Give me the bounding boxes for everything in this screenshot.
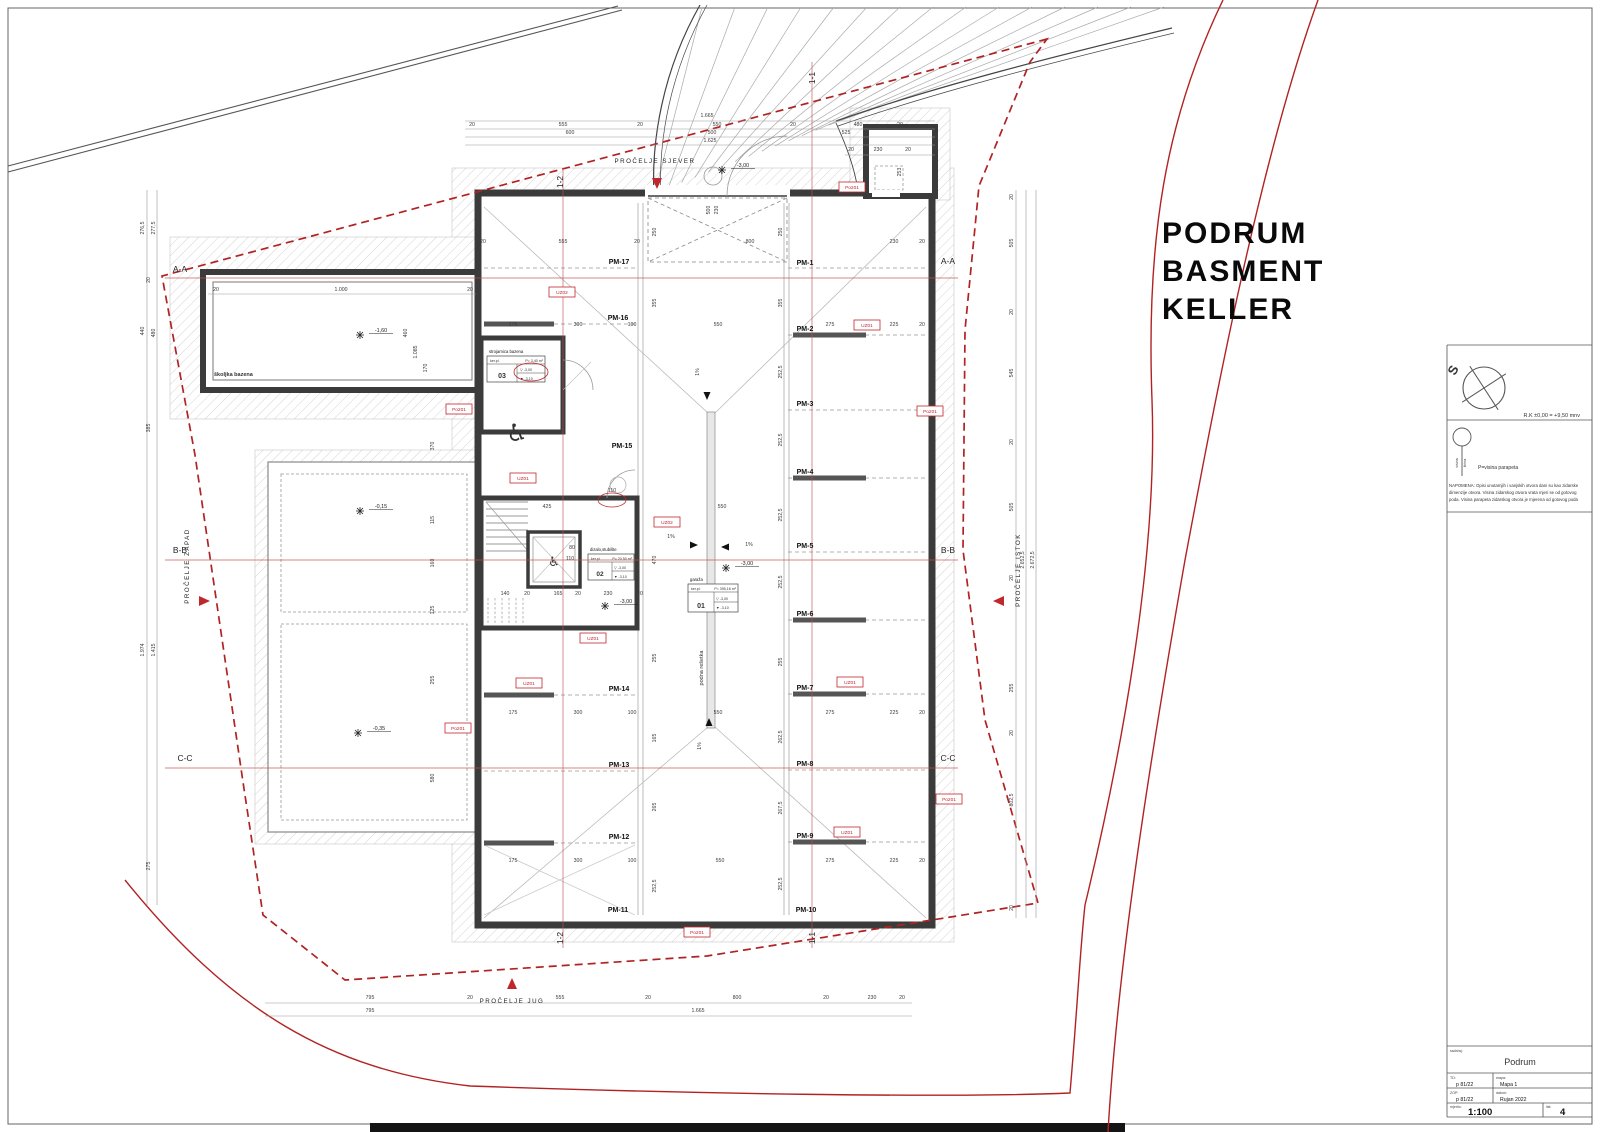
dim-label: 275: [146, 862, 152, 871]
slope-percent-label: 1%: [667, 534, 675, 540]
dim-label: 225: [890, 858, 899, 864]
zop-label: ZOP:: [1450, 1091, 1458, 1095]
scale-label: mjerilo:: [1450, 1105, 1462, 1109]
type-tag-label: UZ01: [844, 680, 856, 686]
floor-grate: [707, 412, 715, 728]
parking-spot-label: PM-9: [797, 833, 814, 840]
parking-spot-label: PM-16: [608, 315, 629, 322]
td-label: TD:: [1450, 1076, 1456, 1080]
parking-spot-label: PM-14: [609, 686, 630, 693]
dim-label: 252,5: [652, 879, 658, 892]
dim-label: 20: [146, 277, 152, 283]
dim-label: 20: [213, 287, 219, 293]
room-level-1: ▽ -3,00: [716, 597, 728, 601]
sheet-label: list:: [1546, 1105, 1551, 1109]
dim-label: 20: [919, 239, 925, 245]
dim-label: 160: [430, 559, 436, 568]
scan-edge-strip: [370, 1123, 1125, 1132]
info-column-frame: [1447, 345, 1592, 1117]
dim-label: 175: [509, 322, 518, 328]
drawing-sheet: školjka bazena podna rešetka: [0, 0, 1600, 1132]
dim-label: 2.672,5: [1030, 551, 1036, 568]
room-floor: ker.pl.: [490, 359, 500, 363]
opening-legend: visina širina P=visina parapeta NAPOMENA…: [1449, 428, 1579, 502]
terrace-rooms: [268, 462, 478, 832]
section-marker-label: 1-2: [555, 176, 565, 189]
spot-elevation-value: -1,60: [375, 328, 387, 334]
dim-label: 1.665: [701, 113, 714, 119]
dim-label: 20: [1009, 730, 1015, 736]
dim-label: 255: [430, 676, 436, 685]
spot-elevation-value: -3,00: [620, 599, 632, 605]
facade-arrow-icon: [199, 596, 210, 606]
room-level-1: ▽ -3,00: [520, 368, 532, 372]
dim-label: 600: [566, 130, 575, 136]
spot-elevation-value: -3,00: [741, 561, 753, 567]
dim-label: 230: [890, 239, 899, 245]
dim-label: 277,5: [151, 221, 157, 234]
room-name: strojarnica bazena: [489, 349, 524, 354]
dim-label: 170: [423, 364, 429, 373]
accessible-parking-icon: ♿: [506, 420, 528, 447]
room-floor: ker.pl.: [691, 587, 701, 591]
dim-label: 165: [652, 734, 658, 743]
dim-label: 252,5: [778, 365, 784, 378]
dim-label: 252,5: [778, 575, 784, 588]
sirina-label: širina: [1463, 459, 1467, 468]
dim-label: 230: [714, 206, 720, 215]
facade-label: PROČELJE ISTOK: [1015, 533, 1022, 607]
dim-label: 300: [574, 322, 583, 328]
type-tag-label: Po201: [923, 409, 937, 415]
section-marker-label: B-B: [941, 545, 956, 555]
pool-label: školjka bazena: [214, 372, 254, 378]
datum-note: R.K ±0,00 = +9,50 mnv: [1523, 413, 1580, 419]
content-value: Podrum: [1504, 1057, 1536, 1067]
dim-label: 225: [890, 710, 899, 716]
dim-label: 253: [897, 168, 903, 177]
dim-label: 140: [501, 591, 510, 597]
section-marker-label: B-B: [173, 545, 188, 555]
dim-label: 252,5: [778, 433, 784, 446]
dim-label: 20: [467, 287, 473, 293]
dim-label: 100: [628, 710, 637, 716]
dim-label: 1.000: [335, 287, 348, 293]
dim-label: 110: [608, 488, 616, 494]
dim-label: 175: [509, 858, 518, 864]
parapet-label: P=visina parapeta: [1478, 465, 1518, 471]
dim-label: 275: [826, 710, 835, 716]
dim-label: 267,5: [778, 801, 784, 814]
type-tag-label: UZ01: [523, 681, 535, 687]
north-compass: S R.K ±0,00 = +9,50 mnv: [1444, 352, 1580, 424]
dim-label: 802,5: [1009, 793, 1015, 806]
parking-spot-label: PM-17: [609, 259, 630, 266]
dim-label: 20: [790, 122, 796, 128]
dim-label: 20: [524, 591, 530, 597]
room-area: P= 20,50 m²: [612, 557, 632, 561]
dim-label: 505: [1009, 503, 1015, 512]
dim-label: 230: [874, 147, 883, 153]
dim-label: 20: [469, 122, 475, 128]
section-marker-label: 1-1: [807, 932, 817, 945]
facade-label: PROČELJE SJEVER: [615, 158, 696, 165]
dim-label: 230: [604, 591, 613, 597]
dim-label: 800: [733, 995, 742, 1001]
dim-label: 370: [430, 442, 436, 451]
garage-entry-opening: [645, 185, 790, 201]
room-area: P= 395,16 m²: [714, 587, 736, 591]
dim-label: 20: [645, 995, 651, 1001]
parking-spot-label: PM-6: [797, 611, 814, 618]
floor-grate-label: podna rešetka: [699, 650, 705, 686]
section-marker-label: C-C: [940, 753, 955, 763]
road-edge-lines: [8, 6, 622, 172]
dim-label: 525: [842, 130, 851, 136]
date-label: datum:: [1496, 1091, 1507, 1095]
mapa-value: Mapa 1: [1500, 1082, 1517, 1088]
dim-label: 580: [430, 774, 436, 783]
note-line-1: NAPOMENA: Opisi unutarnjih i vanjskih ot…: [1449, 483, 1579, 488]
td-value: p 81/22: [1456, 1082, 1473, 1088]
dim-label: 20: [467, 995, 473, 1001]
type-tag-label: UZ02: [661, 520, 673, 526]
dim-label: 500: [706, 206, 712, 215]
parking-spot-label: PM-5: [797, 543, 814, 550]
dim-label: 550: [716, 858, 725, 864]
dim-label: 115: [430, 516, 436, 524]
date-value: Rujan 2022: [1500, 1097, 1527, 1103]
room-level-2: ▼ -3,10: [716, 606, 729, 610]
type-tag-label: UZ01: [841, 830, 853, 836]
dim-label: 545: [1009, 369, 1015, 378]
dim-label: 20: [823, 995, 829, 1001]
elevator-wheelchair-icon: ♿: [548, 554, 560, 569]
facade-arrow-icon: [993, 596, 1004, 606]
room-name: garaža: [690, 577, 703, 582]
dim-label: 1.974: [140, 643, 146, 656]
room-number: 03: [498, 373, 506, 380]
dim-label: 20: [1009, 439, 1015, 445]
dim-label: 550: [714, 322, 723, 328]
dim-label: 20: [905, 147, 911, 153]
dim-label: 555: [559, 122, 568, 128]
parking-spot-label: PM-12: [609, 834, 630, 841]
dim-label: 110: [566, 556, 574, 562]
content-label: sadržaj:: [1450, 1049, 1463, 1053]
dim-label: 255: [778, 658, 784, 667]
floor-plan-drawing: školjka bazena podna rešetka: [0, 0, 1600, 1132]
dim-label: 175: [509, 710, 518, 716]
dim-label: 440: [140, 327, 146, 336]
dim-label: 262,5: [778, 730, 784, 743]
dim-label: 20: [848, 147, 854, 153]
dim-label: 165: [554, 591, 563, 597]
dim-label: 275: [826, 858, 835, 864]
dim-label: 425: [543, 504, 552, 510]
sheet-value: 4: [1560, 1107, 1566, 1118]
parking-spot-label: PM-10: [796, 907, 817, 914]
section-marker-label: C-C: [177, 753, 192, 763]
type-tag-label: Po201: [690, 930, 704, 936]
opening-symbol-icon: [1453, 428, 1471, 446]
dim-label: 100: [628, 322, 637, 328]
dim-label: 470: [652, 556, 658, 565]
parking-spot-label: PM-3: [797, 401, 814, 408]
section-marker-label: 1-2: [555, 932, 565, 945]
dim-label: 100: [628, 858, 637, 864]
dim-label: 252,5: [778, 508, 784, 521]
type-tag-label: Po201: [451, 726, 465, 732]
visina-label: visina: [1455, 458, 1459, 467]
facade-label: PROČELJE ZAPAD: [184, 528, 191, 604]
drawing-caption: PODRUM BASMENT KELLER: [1162, 217, 1324, 326]
dim-label: 555: [556, 995, 565, 1001]
dim-label: 555: [559, 239, 568, 245]
type-tag-label: UZ01: [861, 323, 873, 329]
room-number: 02: [596, 571, 604, 578]
parking-spot-label: PM-13: [609, 762, 630, 769]
dim-label: 1.665: [692, 1008, 705, 1014]
dim-label: 125: [430, 606, 436, 615]
facade-arrow-icon: [507, 978, 517, 989]
dim-label: 252,5: [778, 877, 784, 890]
parking-spot-label: PM-2: [797, 326, 814, 333]
room-number: 01: [697, 603, 705, 610]
dim-label: 795: [366, 1008, 375, 1014]
dim-label: 460: [403, 329, 409, 338]
dim-label: 300: [574, 710, 583, 716]
dim-label: 20: [919, 710, 925, 716]
section-marker-label: 1-1: [807, 72, 817, 85]
type-tag-label: UZ01: [517, 476, 529, 482]
parking-spot-label: PM-4: [797, 469, 814, 476]
dim-label: 20: [575, 591, 581, 597]
dim-label: 20: [897, 122, 903, 128]
dim-label: 1.415: [151, 643, 157, 656]
dim-label: 276,5: [140, 221, 146, 234]
caption-line-basment: BASMENT: [1162, 255, 1324, 288]
note-line-3: poda. Visina parapeta zidarskog otvora j…: [1449, 497, 1579, 502]
dim-label: 500: [708, 130, 717, 136]
dim-label: 20: [1009, 309, 1015, 315]
dim-label: 275: [826, 322, 835, 328]
dim-label: 795: [366, 995, 375, 1001]
parking-spot-label: PM-7: [797, 685, 814, 692]
spot-elevation-value: -0,15: [375, 504, 387, 510]
dim-label: 255: [1009, 684, 1015, 693]
section-marker-label: A-A: [173, 264, 188, 274]
dim-label: 480: [151, 329, 157, 338]
slope-percent-label: 1%: [745, 542, 753, 548]
dim-label: 20: [480, 239, 486, 245]
dim-label: 1.625: [704, 138, 717, 144]
dim-label: 20: [634, 239, 640, 245]
type-tag-label: UZ01: [587, 636, 599, 642]
type-tag-label: Po201: [942, 797, 956, 803]
dim-label: 20: [637, 591, 643, 597]
caption-line-podrum: PODRUM: [1162, 217, 1307, 250]
slope-percent-label: 1%: [697, 742, 703, 750]
room-level-2: ▼ -3,10: [614, 575, 627, 579]
dim-label: 255: [652, 654, 658, 663]
type-tag-label: Po201: [845, 185, 859, 191]
dim-label: 480: [854, 122, 863, 128]
parking-spot-label: PM-15: [612, 443, 633, 450]
section-marker-label: A-A: [941, 256, 956, 266]
parking-spot-label: PM-11: [608, 907, 628, 914]
zop-value: p 81/22: [1456, 1097, 1473, 1103]
dim-label: 230: [868, 995, 877, 1001]
dim-label: 355: [652, 299, 658, 308]
dim-label: 265: [652, 803, 658, 812]
spot-elevation-value: -0,35: [373, 726, 385, 732]
dim-label: 550: [714, 710, 723, 716]
dim-label: 1.085: [413, 345, 419, 358]
facade-label: PROČELJE JUG: [480, 998, 545, 1005]
annex-room: [866, 127, 935, 197]
dim-label: 20: [899, 995, 905, 1001]
dim-label: 20: [637, 122, 643, 128]
dim-label: 800: [746, 239, 755, 245]
room-name: dizalo,stubište: [590, 547, 617, 552]
dim-label: 225: [890, 322, 899, 328]
dim-label: 550: [713, 122, 722, 128]
room-area: P= 3,40 m²: [525, 359, 543, 363]
dim-label: 20: [919, 322, 925, 328]
dim-label: 550: [718, 504, 727, 510]
title-block: sadržaj: Podrum TD: p 81/22 mapa: Mapa 1…: [1450, 1049, 1566, 1118]
scale-value: 1:100: [1468, 1107, 1492, 1118]
dim-label: 250: [778, 228, 784, 237]
dim-label: 505: [1009, 239, 1015, 248]
parking-spot-label: PM-1: [797, 260, 814, 267]
parking-spot-label: PM-8: [797, 761, 814, 768]
dim-label: 20: [1009, 194, 1015, 200]
spot-elevation-value: -3,00: [737, 163, 749, 169]
dim-label: 385: [146, 424, 152, 433]
type-tag-label: UZ02: [556, 290, 568, 296]
room-floor: ker.pl.: [591, 557, 601, 561]
dim-label: 355: [778, 299, 784, 308]
slope-percent-label: 1%: [695, 368, 701, 376]
dim-label: 20: [1009, 905, 1015, 911]
dim-label: 80: [569, 545, 575, 551]
dim-label: 20: [919, 858, 925, 864]
dim-label: 250: [652, 228, 658, 237]
dim-label: 300: [574, 858, 583, 864]
caption-line-keller: KELLER: [1162, 293, 1294, 326]
type-tag-label: Po201: [452, 407, 466, 413]
room-level-1: ▽ -3,00: [614, 566, 626, 570]
mapa-label: mapa:: [1496, 1076, 1506, 1080]
note-line-2: dimenzije otvora. Visina zidarskog otvor…: [1449, 490, 1577, 495]
